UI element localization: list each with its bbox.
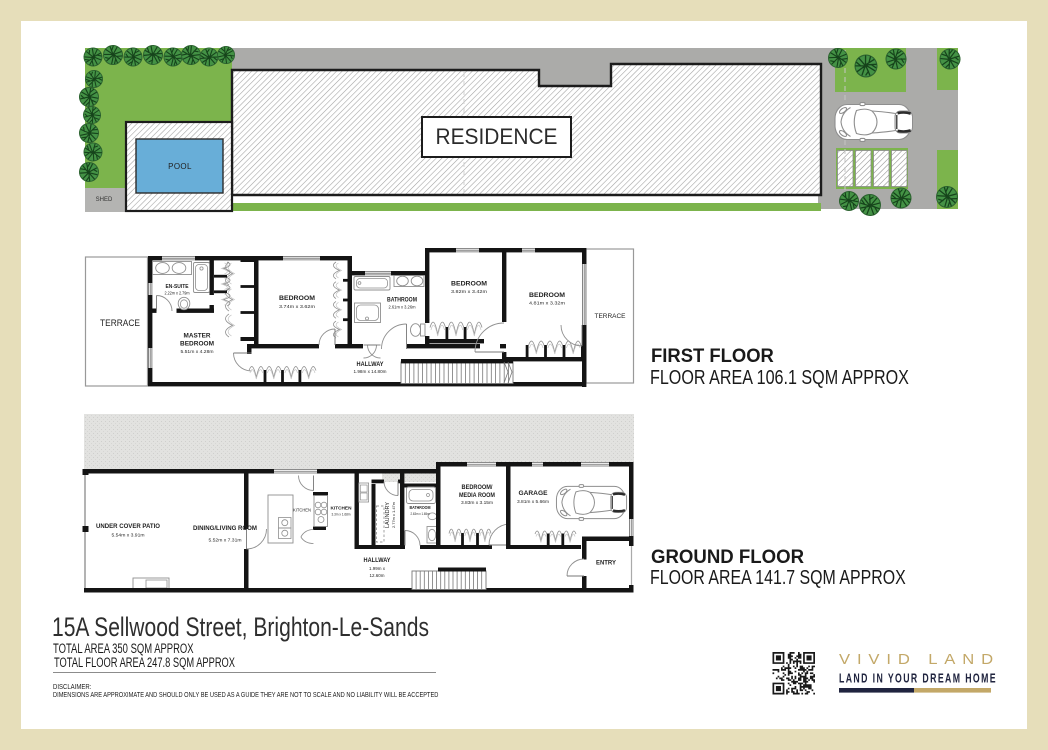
svg-text:LAND IN YOUR DREAM HOME: LAND IN YOUR DREAM HOME [839, 672, 997, 686]
svg-text:VIVID LAND: VIVID LAND [839, 652, 1000, 668]
